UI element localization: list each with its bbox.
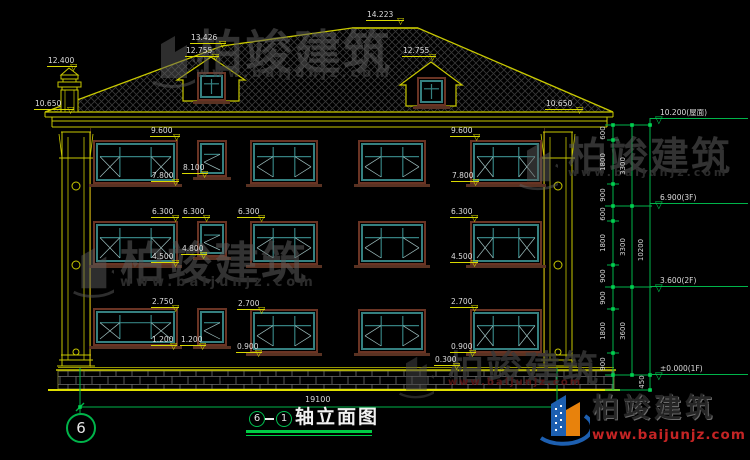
window bbox=[354, 310, 430, 356]
linework bbox=[354, 184, 430, 187]
chain-segment-label: 1800 bbox=[598, 226, 608, 260]
linework bbox=[466, 265, 546, 268]
linework bbox=[72, 182, 80, 190]
linework bbox=[257, 326, 273, 336]
linework bbox=[254, 313, 314, 349]
window bbox=[466, 222, 546, 268]
linework bbox=[204, 331, 220, 339]
linework bbox=[611, 351, 615, 355]
linework bbox=[630, 123, 634, 127]
chain-segment-label: 900 bbox=[598, 347, 608, 381]
watermark-logo-icon bbox=[147, 30, 195, 90]
elevation-mark: 9.600▽ bbox=[450, 126, 480, 137]
linework bbox=[630, 285, 634, 289]
cad-elevation-drawing: 柏竣建筑 www.baijunjz.com 柏竣建筑 www.baijunjz.… bbox=[0, 0, 750, 460]
linework bbox=[630, 204, 634, 208]
watermark-url: www.baijunjz.com bbox=[120, 276, 317, 289]
linework bbox=[254, 144, 314, 180]
linework bbox=[365, 248, 381, 258]
elevation-mark: 12.755▽ bbox=[185, 46, 219, 57]
elevation-mark: 10.650▽ bbox=[34, 99, 74, 110]
linework bbox=[648, 388, 652, 392]
linework bbox=[611, 204, 615, 208]
elevation-mark: 7.800▽ bbox=[451, 171, 479, 182]
linework bbox=[365, 157, 381, 167]
title-axis-circle: 6 bbox=[249, 411, 265, 427]
level-marker: 3.600(2F)▽ bbox=[650, 275, 748, 287]
linework bbox=[354, 265, 430, 268]
axis-bubble-6: 6 bbox=[66, 413, 96, 443]
linework bbox=[246, 184, 322, 187]
linework bbox=[611, 123, 615, 127]
linework bbox=[193, 177, 231, 180]
window bbox=[354, 141, 430, 187]
linework bbox=[365, 238, 381, 248]
linework bbox=[78, 405, 82, 409]
watermark-logo-icon bbox=[68, 242, 114, 300]
watermark-logo-icon bbox=[394, 352, 434, 400]
linework bbox=[73, 349, 79, 355]
linework bbox=[362, 313, 422, 349]
elevation-mark: 6.300▽ bbox=[237, 207, 265, 218]
linework bbox=[474, 313, 538, 349]
chain-segment-label: 1800 bbox=[598, 145, 608, 179]
linework bbox=[359, 310, 425, 352]
chain-group-label: 3300 bbox=[618, 230, 628, 264]
elevation-mark: 13.426▽ bbox=[190, 33, 226, 44]
elevation-mark: 4.500▽ bbox=[450, 252, 478, 263]
elevation-mark: 2.700▽ bbox=[450, 297, 478, 308]
chain-total-label: 10200 bbox=[636, 233, 646, 267]
elevation-mark: 1.200▽ bbox=[151, 335, 177, 346]
linework bbox=[611, 263, 615, 267]
linework bbox=[61, 75, 78, 79]
level-marker: 10.200(屋面)▽ bbox=[650, 107, 748, 119]
drawing-title: 轴立面图 bbox=[295, 407, 379, 427]
title-underline bbox=[246, 430, 372, 433]
linework bbox=[611, 182, 615, 186]
elevation-mark: 4.800▽ bbox=[181, 244, 207, 255]
linework bbox=[251, 141, 317, 183]
title-axis-circle: 1 bbox=[276, 411, 292, 427]
title-dash bbox=[265, 418, 274, 420]
brand-url: www.baijunjz.com bbox=[592, 427, 746, 443]
linework bbox=[362, 144, 422, 180]
linework bbox=[403, 167, 419, 177]
level-marker: ±0.000(1F)▽ bbox=[650, 363, 748, 375]
linework bbox=[611, 307, 615, 311]
elevation-mark: 7.800▽ bbox=[151, 171, 179, 182]
linework bbox=[365, 167, 381, 177]
linework bbox=[611, 285, 615, 289]
linework bbox=[403, 336, 419, 346]
elevation-mark: 6.300▽ bbox=[450, 207, 478, 218]
title-underline bbox=[246, 435, 372, 436]
watermark-url: www.baijunjz.com bbox=[568, 167, 732, 178]
elevation-mark: 9.600▽ bbox=[150, 126, 180, 137]
watermark-url: www.baijunjz.com bbox=[448, 378, 600, 388]
watermark-middle: 柏竣建筑 www.baijunjz.com bbox=[120, 241, 317, 289]
linework bbox=[362, 225, 422, 261]
overall-dimension: 19100 bbox=[305, 395, 330, 404]
window bbox=[354, 222, 430, 268]
elevation-mark: 0.300▽ bbox=[434, 355, 460, 366]
linework bbox=[365, 326, 381, 336]
elevation-mark: 8.100▽ bbox=[182, 163, 208, 174]
linework bbox=[204, 323, 220, 331]
watermark-logo-icon bbox=[514, 138, 558, 192]
elevation-mark: 2.700▽ bbox=[237, 299, 265, 310]
linework bbox=[58, 82, 81, 87]
linework bbox=[413, 106, 450, 109]
linework bbox=[295, 167, 311, 177]
linework bbox=[554, 261, 562, 269]
window bbox=[246, 141, 322, 187]
linework bbox=[630, 373, 634, 377]
linework bbox=[611, 219, 615, 223]
brand-logo-icon bbox=[536, 390, 590, 448]
elevation-mark: 6.300▽ bbox=[182, 207, 210, 218]
linework bbox=[611, 373, 615, 377]
elevation-mark: 0.900▽ bbox=[236, 342, 262, 353]
linework bbox=[365, 336, 381, 346]
linework bbox=[204, 154, 220, 162]
watermark-url: www.baijunjz.com bbox=[196, 67, 393, 80]
linework bbox=[648, 123, 652, 127]
linework bbox=[474, 225, 538, 261]
chain-segment-label: 1800 bbox=[598, 314, 608, 348]
linework bbox=[359, 222, 425, 264]
chain-segment-label: 900 bbox=[598, 281, 608, 315]
window bbox=[193, 141, 231, 180]
brand-block: 柏竣建筑 www.baijunjz.com bbox=[536, 390, 590, 452]
linework bbox=[89, 346, 182, 349]
chain-group-label: 3300 bbox=[618, 149, 628, 183]
linework bbox=[295, 326, 311, 336]
elevation-mark: 12.755▽ bbox=[402, 46, 436, 57]
linework bbox=[403, 326, 419, 336]
linework bbox=[295, 157, 311, 167]
linework bbox=[89, 184, 182, 187]
elevation-mark: 10.650▽ bbox=[545, 99, 583, 110]
elevation-mark: 2.750▽ bbox=[151, 297, 179, 308]
linework bbox=[193, 101, 230, 104]
linework bbox=[257, 167, 273, 177]
linework bbox=[257, 157, 273, 167]
elevation-mark: 4.500▽ bbox=[151, 252, 179, 263]
linework bbox=[295, 336, 311, 346]
linework bbox=[403, 238, 419, 248]
level-marker: 6.900(3F)▽ bbox=[650, 192, 748, 204]
linework bbox=[403, 248, 419, 258]
elevation-mark: 1.200▽ bbox=[180, 335, 206, 346]
linework bbox=[359, 141, 425, 183]
chain-group-label: 3600 bbox=[618, 314, 628, 348]
elevation-mark: 6.300▽ bbox=[151, 207, 179, 218]
elevation-mark: 0.900▽ bbox=[450, 342, 476, 353]
linework bbox=[403, 157, 419, 167]
elevation-mark: 12.400▽ bbox=[47, 56, 77, 67]
watermark-right: 柏竣建筑 www.baijunjz.com bbox=[568, 138, 732, 178]
elevation-mark: 14.223▽ bbox=[366, 10, 404, 21]
brand-name: 柏竣建筑 bbox=[592, 395, 716, 422]
